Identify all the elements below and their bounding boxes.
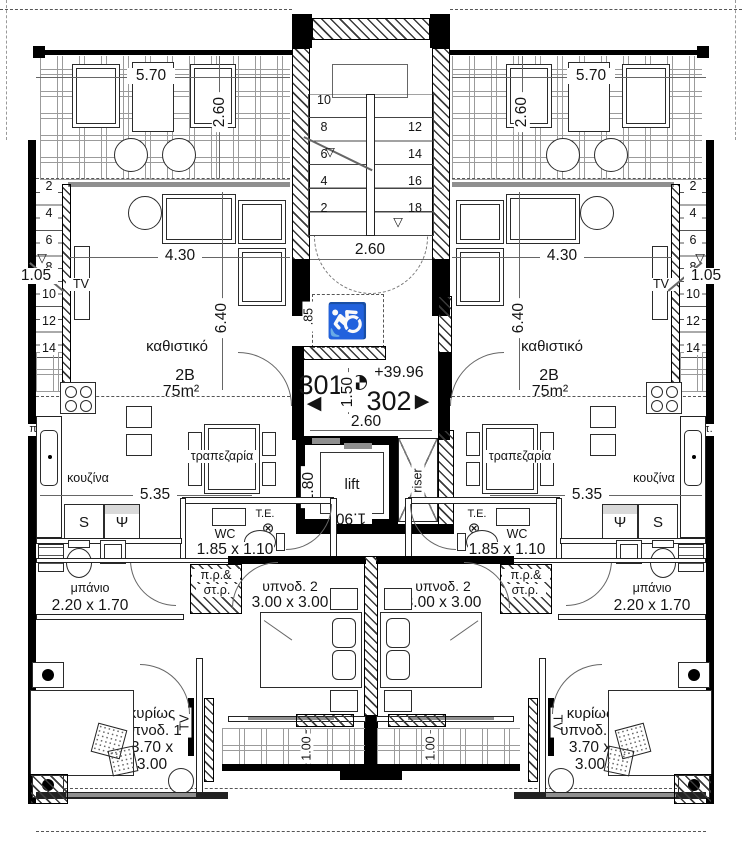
room-label-living-left: καθιστικό (139, 339, 215, 355)
dim-balcony-width-left: 5.70 (127, 68, 175, 84)
hall-wall-left (36, 558, 230, 563)
boundary-line-top-right (450, 9, 742, 10)
level-marker-stair-2: ▽ (390, 216, 406, 229)
balcony-post-right (697, 46, 709, 58)
pillow-2-master-right (604, 746, 635, 777)
side-stair-6-right: 6 (684, 234, 702, 247)
bar-chair-2-right (590, 434, 616, 456)
tag-te-right: T.E. (460, 509, 494, 521)
sliding-door-right (452, 182, 674, 187)
burner-icon (65, 400, 77, 412)
armchair-a-left (238, 200, 286, 244)
side-stair-2-right: 2 (684, 180, 702, 193)
balcony-armchair-1-right (622, 64, 670, 128)
dim-line-living-depth-right (519, 192, 520, 390)
wc-wall-top-right (408, 497, 560, 504)
burner-icon (666, 386, 678, 398)
wc-wall-top-left (182, 497, 334, 504)
shaft-label-1-right: π.ρ.& (502, 569, 550, 582)
lobby-wall-right (438, 352, 452, 398)
pillow-1-bed2-left (332, 618, 356, 648)
balcony-pouf-2-right (546, 138, 580, 172)
bath-cistern-left (68, 540, 90, 548)
lift-door-leaf-1 (312, 438, 340, 444)
rear-balcony-floor-right (377, 728, 520, 768)
room-label-bath-right: μπάνιο (620, 582, 684, 595)
kitchen-sink-right (684, 430, 702, 486)
boundary-line-right (735, 0, 736, 140)
nightstand-top-bed2-left (330, 588, 358, 610)
nightstand-bottom-bed2-right (384, 690, 412, 712)
stair-step-6: 6 (314, 148, 334, 161)
balcony-armchair-1-left (72, 64, 120, 128)
stair-step-4: 4 (314, 175, 334, 188)
side-stair-14-left: 14 (40, 342, 58, 355)
pillow-2-bed2-left (332, 650, 356, 680)
sofa-right (506, 194, 580, 244)
dim-hall-width: 2.60 (342, 414, 390, 430)
room-label-kitchen-right: κουζίνα (622, 472, 686, 485)
balcony-post-left (33, 46, 45, 58)
coffee-table-left (128, 196, 162, 230)
dim-entry-right: 1.05 (684, 268, 728, 284)
hall-wall-right (512, 558, 706, 563)
stair-wall-top (312, 18, 430, 40)
bed2-wall-north-right (376, 556, 514, 564)
balcony-pouf-1-left (114, 138, 148, 172)
bar-chair-2-left (126, 434, 152, 456)
balcony-pouf-1-right (594, 138, 628, 172)
bath-door-arc-left (130, 560, 176, 606)
shaft-label-2-left: στ.ρ. (196, 584, 238, 597)
dim-kitchen-left: 5.35 (133, 487, 177, 503)
corner-hatch-left (30, 774, 68, 804)
coffee-table-right (580, 196, 614, 230)
cabinet-s-right: S (638, 504, 678, 540)
elevation-value: +39.96 (368, 365, 430, 382)
dim-kitchen-right: 5.35 (565, 487, 609, 503)
stair-wall-right (432, 48, 450, 260)
cabinet-psi-left: Ψ (104, 504, 140, 540)
lobby-wall-left-lower (292, 398, 304, 440)
bath-toilet-left (66, 548, 92, 578)
boundary-line-bottom (36, 831, 706, 832)
balcony-pouf-2-left (162, 138, 196, 172)
wc-cistern-right (457, 533, 466, 551)
entry-door-arc-302 (450, 352, 504, 406)
wc-wall-west-left (180, 498, 186, 560)
room-label-bath-left: μπάνιο (58, 582, 122, 595)
nightstand-top-bed2-right (384, 588, 412, 610)
stair-step-12: 12 (404, 121, 426, 134)
side-stair-4-left: 4 (40, 207, 58, 220)
cabinet-psi-right: Ψ (602, 504, 638, 540)
armchair-a-right (456, 200, 504, 244)
balcony-threshold-left (36, 178, 290, 179)
stair-step-16: 16 (404, 175, 426, 188)
arrow-right-icon: ▶ (412, 392, 432, 412)
drain-icon (692, 455, 696, 459)
stair-step-2: 2 (314, 202, 334, 215)
drain-icon (48, 455, 52, 459)
side-stair-12-right: 12 (684, 315, 702, 328)
tv-label-living-right: TV (646, 278, 676, 291)
dim-balcony-width-right: 5.70 (567, 68, 615, 84)
boundary-line-bottom-inner (60, 788, 682, 789)
dining-chair-2-right (540, 462, 554, 486)
party-wall-hatch (364, 556, 378, 716)
rear-center-wall (340, 766, 402, 780)
bath-toilet-right (650, 548, 676, 578)
dim-living-width-left: 4.30 (158, 248, 202, 264)
room-label-wc-right: WC (500, 528, 534, 541)
burner-icon (65, 386, 77, 398)
dim-line-living-depth-left (222, 192, 223, 390)
balcony-rail-right (450, 50, 706, 55)
side-stair-10-left: 10 (40, 288, 58, 301)
boundary-line-top-left (0, 9, 292, 10)
dining-chair-3-left (262, 432, 276, 456)
boundary-line-left (6, 0, 7, 140)
corner-hatch-right (674, 774, 712, 804)
master-wall-east-left (196, 658, 203, 796)
unit-area-right: 75m² (526, 384, 574, 401)
burner-icon (80, 400, 92, 412)
room-label-dining-right: τραπεζαρία (484, 450, 556, 463)
dim-bath-left: 2.20 x 1.70 (49, 598, 131, 614)
master-door-arc-right (552, 664, 602, 714)
dining-chair-3-right (466, 432, 480, 456)
lift-door-leaf-2 (344, 443, 372, 449)
dining-chair-4-left (262, 462, 276, 486)
dining-chair-2-left (188, 462, 202, 486)
bath-cistern-right (652, 540, 674, 548)
room-label-kitchen-left: κουζίνα (56, 472, 120, 485)
side-stair-landing-left (36, 352, 62, 392)
rear-balcony-floor-left (222, 728, 365, 768)
tv-label-living-left: TV (66, 278, 96, 291)
side-stair-14-right: 14 (684, 342, 702, 355)
floor-plan: 5.70 5.70 2.60 2.60 ▽ ▽ 10 8 6 4 2 12 14… (0, 0, 742, 852)
wc-wall-east-right (556, 498, 562, 560)
ceiling-light-left (168, 768, 194, 794)
nightstand-bottom-bed2-left (330, 690, 358, 712)
dim-wheelchair: .85 (302, 302, 315, 332)
level-marker-side-left: ▽ (34, 252, 50, 265)
stair-step-14: 14 (404, 148, 426, 161)
ceiling-light-right (548, 768, 574, 794)
bed2-wall-north-left (228, 556, 366, 564)
burner-icon (651, 386, 663, 398)
dim-entry-left: 1.05 (14, 268, 58, 284)
burner-icon (80, 386, 92, 398)
stair-column-top-left (292, 14, 312, 48)
master-wall-hatch-left (204, 698, 214, 782)
shaft-label-2-right: στ.ρ. (504, 584, 546, 597)
stair-step-10: 10 (314, 94, 334, 107)
bath-door-arc-right (566, 560, 612, 606)
riser-label: riser (411, 459, 424, 503)
burner-icon (651, 400, 663, 412)
master-door-arc-left (140, 664, 190, 714)
wc-door-arc-left (286, 504, 332, 550)
stair-swing-arc (314, 236, 428, 294)
stair-landing (332, 64, 408, 98)
sliding-door-left (68, 182, 290, 187)
master-wall-hatch-right (528, 698, 538, 782)
master-window-left (66, 793, 196, 797)
rear-balcony-wall-right (388, 714, 446, 727)
pillow-1-bed2-right (386, 618, 410, 648)
stair-handrail (366, 94, 375, 236)
room-label-living-right: καθιστικό (514, 339, 590, 355)
dim-balcony-depth-left: 2.60 (212, 92, 228, 132)
side-stair-landing-right (680, 352, 706, 392)
burner-icon (666, 400, 678, 412)
unit-number-302: 302 (362, 387, 416, 415)
pillow-2-bed2-right (386, 650, 410, 680)
stair-step-8: 8 (314, 121, 334, 134)
master-wall-north-left (36, 614, 184, 620)
lamp-icon (688, 669, 700, 681)
unit-area-left: 75m² (157, 384, 205, 401)
dining-chair-4-right (466, 462, 480, 486)
rear-balcony-wall-left (296, 714, 354, 727)
arrow-left-icon: ◀ (304, 394, 324, 414)
bar-chair-1-left (126, 406, 152, 428)
dim-living-depth-right: 6.40 (511, 298, 527, 338)
wc-door-arc-right (410, 504, 456, 550)
stove-left (60, 382, 96, 414)
wc-sink-left (212, 508, 246, 526)
wheelchair-icon: ♿ (328, 302, 372, 342)
lift-label: lift (330, 477, 374, 493)
lobby-wall-hatch (302, 346, 386, 360)
stair-step-18: 18 (404, 202, 426, 215)
master-wall-north-right (558, 614, 706, 620)
master-wall-west-right (539, 658, 546, 796)
dim-living-width-right: 4.30 (540, 248, 584, 264)
dim-balcony-depth-right: 2.60 (514, 92, 530, 132)
wc-sink-right (496, 508, 530, 526)
lobby-wall-right-hatch (438, 296, 452, 354)
balcony-threshold-right (452, 178, 706, 179)
side-stair-2-left: 2 (40, 180, 58, 193)
room-label-dining-left: τραπεζαρία (186, 450, 258, 463)
stove-right (646, 382, 682, 414)
room-label-wc-left: WC (208, 528, 242, 541)
bar-chair-1-right (590, 406, 616, 428)
dim-rear-balcony-left: 1.00 (300, 734, 313, 764)
tag-te-left: T.E. (248, 509, 282, 521)
balcony-rail-left (36, 50, 292, 55)
shaft-label-1-left: π.ρ.& (192, 569, 240, 582)
dim-living-depth-left: 6.40 (214, 298, 230, 338)
side-stair-6-left: 6 (40, 234, 58, 247)
master-window-right (546, 793, 676, 797)
lamp-icon (42, 669, 54, 681)
cabinet-s-left: S (64, 504, 104, 540)
side-stair-10-right: 10 (684, 288, 702, 301)
stair-column-top-right (430, 14, 450, 48)
side-stair-4-right: 4 (684, 207, 702, 220)
entry-door-arc-301 (238, 352, 292, 406)
sofa-left (162, 194, 236, 244)
dim-hall-depth: 1.50 (340, 372, 356, 412)
wc-cistern-left (276, 533, 285, 551)
dim-rear-balcony-right: 1.00 (424, 734, 437, 764)
dim-bath-right: 2.20 x 1.70 (611, 598, 693, 614)
side-stair-12-left: 12 (40, 315, 58, 328)
pillow-2-master-left (108, 746, 139, 777)
